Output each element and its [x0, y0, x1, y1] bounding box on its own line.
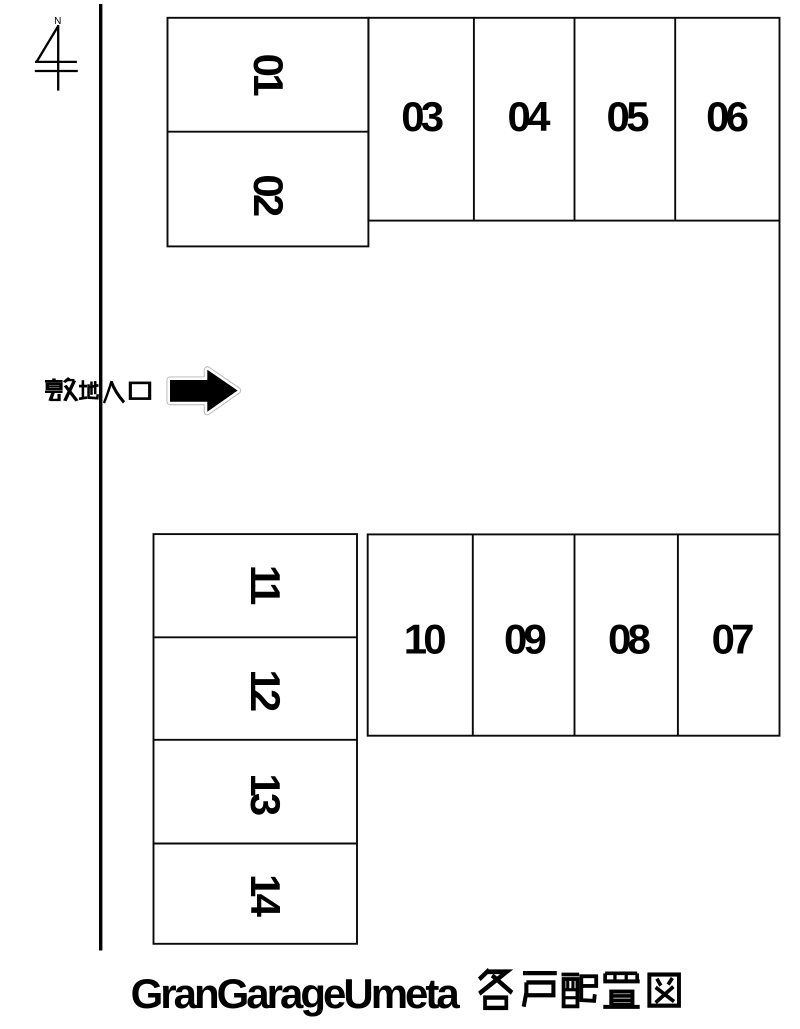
- svg-text:GranGarageUmeta: GranGarageUmeta: [131, 970, 461, 1017]
- svg-text:06: 06: [706, 93, 748, 140]
- svg-text:08: 08: [608, 616, 651, 663]
- svg-text:12: 12: [242, 669, 289, 711]
- svg-text:09: 09: [504, 616, 546, 663]
- svg-text:13: 13: [242, 773, 289, 815]
- svg-text:01: 01: [245, 54, 292, 97]
- svg-text:03: 03: [401, 93, 443, 140]
- svg-text:N: N: [54, 16, 61, 27]
- svg-text:14: 14: [242, 874, 289, 918]
- svg-text:10: 10: [404, 616, 446, 663]
- svg-text:05: 05: [607, 93, 650, 140]
- svg-text:11: 11: [242, 565, 289, 605]
- svg-text:07: 07: [712, 616, 754, 663]
- svg-text:04: 04: [508, 93, 552, 140]
- svg-text:02: 02: [245, 174, 292, 216]
